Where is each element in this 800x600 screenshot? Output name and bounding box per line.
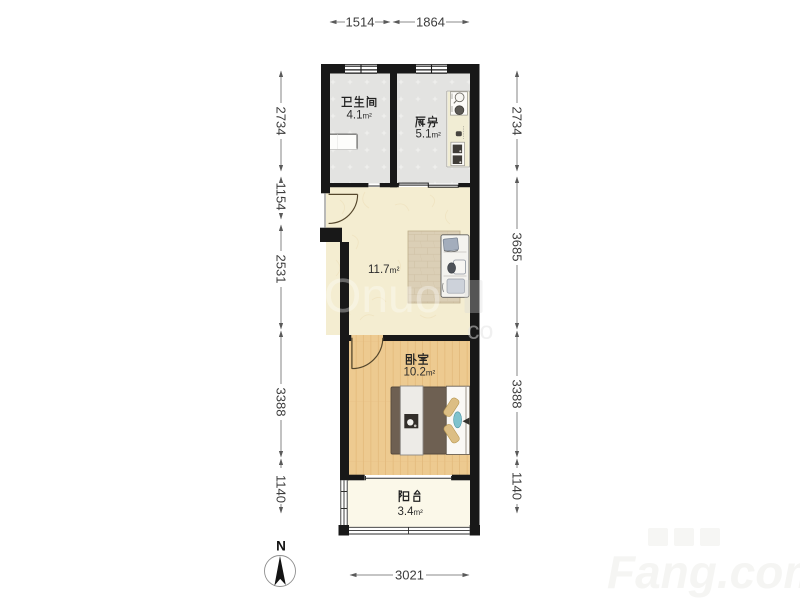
svg-text:1140: 1140 <box>510 472 525 500</box>
svg-text:2734: 2734 <box>510 107 525 136</box>
svg-text:2531: 2531 <box>274 255 289 284</box>
svg-text:Fang.com: Fang.com <box>607 546 800 598</box>
svg-text:3685: 3685 <box>510 233 525 262</box>
svg-text:3.4m²: 3.4m² <box>398 506 424 518</box>
svg-text:4.1m²: 4.1m² <box>347 110 373 122</box>
svg-text:Onuo: Onuo <box>324 270 441 323</box>
svg-text:3388: 3388 <box>274 388 289 417</box>
svg-text:co: co <box>467 317 493 345</box>
svg-text:1864: 1864 <box>416 15 445 30</box>
svg-text:3021: 3021 <box>395 568 424 583</box>
svg-text:1514: 1514 <box>346 15 375 30</box>
svg-text:1140: 1140 <box>274 475 289 503</box>
svg-text:1154: 1154 <box>274 183 289 211</box>
svg-text:3388: 3388 <box>510 380 525 409</box>
svg-text:5.1m²: 5.1m² <box>416 129 442 141</box>
svg-text:10.2m²: 10.2m² <box>404 367 436 379</box>
svg-text:2734: 2734 <box>274 107 289 136</box>
svg-text:N: N <box>276 539 286 554</box>
